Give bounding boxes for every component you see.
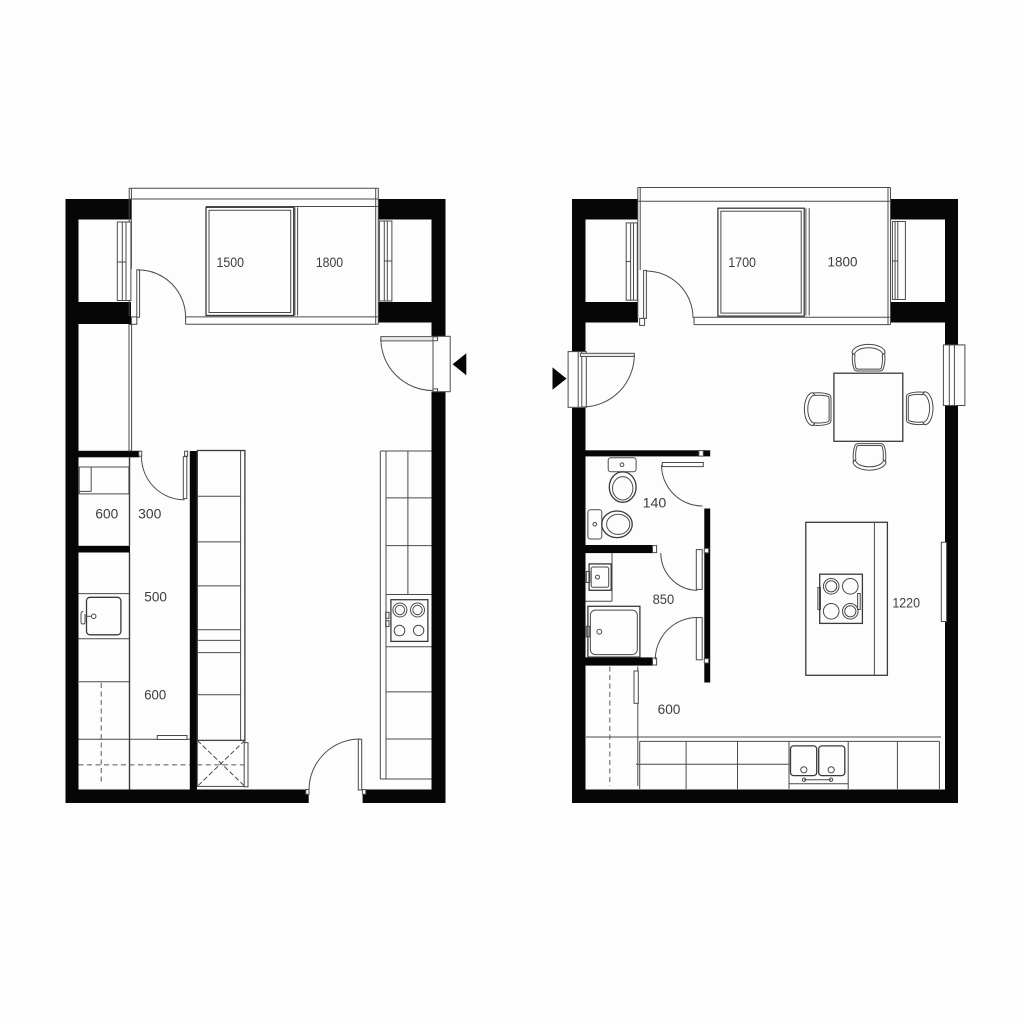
svg-text:300: 300: [138, 507, 161, 522]
svg-text:600: 600: [144, 688, 166, 703]
svg-text:850: 850: [653, 592, 675, 607]
svg-text:600: 600: [658, 702, 681, 717]
svg-text:1800: 1800: [828, 255, 858, 270]
svg-text:1800: 1800: [316, 255, 343, 270]
svg-text:500: 500: [144, 589, 167, 604]
svg-text:1220: 1220: [892, 596, 920, 611]
svg-text:1700: 1700: [728, 255, 756, 270]
svg-text:600: 600: [95, 507, 118, 522]
svg-text:1500: 1500: [217, 255, 245, 270]
svg-text:140: 140: [643, 496, 667, 511]
